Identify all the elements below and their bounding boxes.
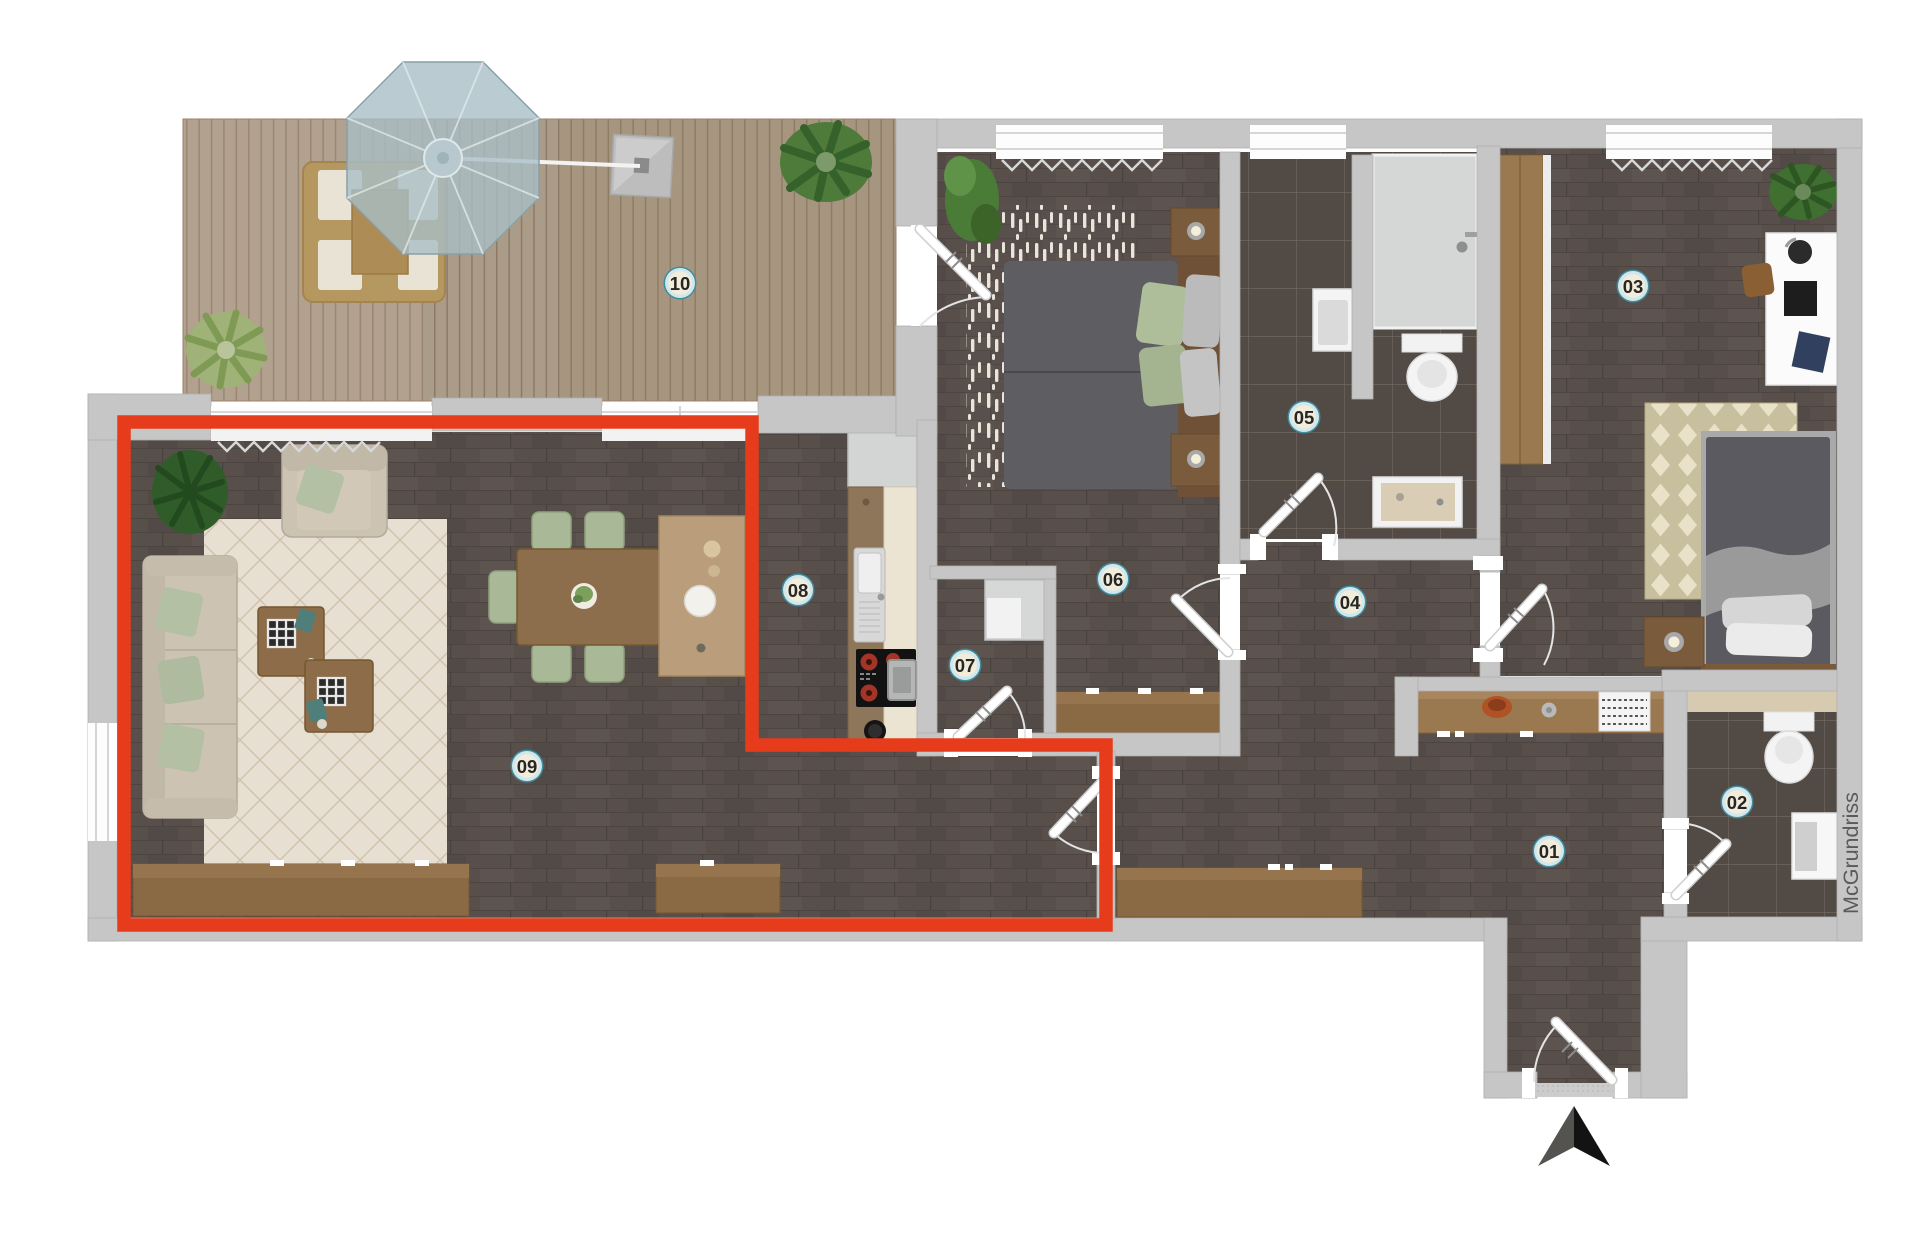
svg-text:McGrundriss: McGrundriss (1839, 792, 1863, 914)
svg-text:02: 02 (1727, 792, 1748, 813)
svg-text:08: 08 (788, 580, 809, 601)
svg-text:05: 05 (1294, 407, 1315, 428)
svg-text:01: 01 (1539, 841, 1560, 862)
svg-text:10: 10 (670, 273, 691, 294)
svg-text:03: 03 (1623, 276, 1644, 297)
svg-text:04: 04 (1340, 592, 1361, 613)
svg-text:07: 07 (955, 655, 976, 676)
svg-text:09: 09 (517, 756, 538, 777)
svg-text:06: 06 (1103, 569, 1124, 590)
